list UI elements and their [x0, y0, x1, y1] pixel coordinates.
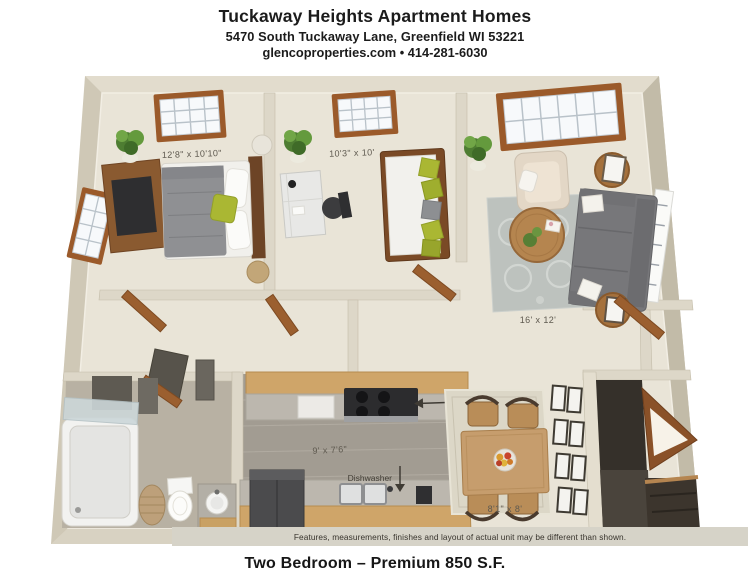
master-skylight-window — [153, 90, 226, 143]
property-address: 5470 South Tuckaway Lane, Greenfield WI … — [0, 29, 750, 44]
property-title: Tuckaway Heights Apartment Homes — [0, 6, 750, 27]
kitchen-dims: 9' x 7'6" — [312, 444, 347, 456]
hamper — [139, 485, 165, 525]
side-table — [595, 153, 629, 187]
dishwasher-label: Dishwasher — [348, 473, 393, 483]
accent-pillow — [421, 220, 443, 242]
accent-pillow — [422, 239, 441, 257]
disclaimer-text: Features, measurements, finishes and lay… — [294, 532, 626, 542]
plan-name: Two Bedroom – Premium 850 S.F. — [0, 555, 750, 573]
living-room-window — [496, 83, 627, 152]
disclaimer-bar: Features, measurements, finishes and lay… — [172, 527, 748, 546]
kitchen-sink — [340, 484, 393, 504]
accent-pillow — [419, 158, 440, 179]
coffee-table — [510, 208, 564, 262]
wicker-stool — [247, 261, 269, 283]
dining-area — [445, 390, 551, 520]
master-bedroom-dims: 12'8" x 10'10" — [162, 148, 222, 160]
living-room-dims: 16' x 12' — [520, 315, 557, 325]
floorplan-rendering: Microwave Dishwasher — [0, 0, 750, 578]
bedroom2-dims: 10'3" x 10' — [329, 147, 375, 159]
flyer: Tuckaway Heights Apartment Homes 5470 So… — [0, 0, 750, 578]
vanity-sink — [198, 484, 236, 530]
bed — [161, 156, 265, 261]
shower-glass — [63, 398, 138, 425]
tv-stand — [102, 159, 169, 253]
bedroom2-skylight-window — [332, 90, 399, 138]
header: Tuckaway Heights Apartment Homes 5470 So… — [0, 3, 750, 60]
footer: Two Bedroom – Premium 850 S.F. — [0, 555, 750, 573]
armchair — [514, 150, 570, 211]
bathtub — [62, 398, 139, 526]
pillow — [421, 200, 441, 220]
daybed — [380, 148, 450, 261]
dining-table — [461, 429, 549, 496]
closet-door — [196, 360, 214, 400]
property-contact: glencoproperties.com • 414-281-6030 — [0, 45, 750, 60]
toilet — [167, 477, 192, 521]
accent-pillow — [210, 194, 238, 224]
desk — [280, 171, 325, 238]
coffee-maker — [416, 486, 432, 504]
appliance — [298, 396, 334, 418]
pillow — [582, 195, 604, 213]
stairs — [645, 477, 700, 530]
stove — [344, 388, 418, 422]
closet-door — [138, 378, 158, 414]
nightstand — [252, 135, 272, 155]
refrigerator — [250, 470, 304, 528]
dining-dims: 8'1" x 8' — [488, 504, 523, 514]
accent-pillow — [421, 178, 443, 200]
tv — [111, 176, 157, 236]
